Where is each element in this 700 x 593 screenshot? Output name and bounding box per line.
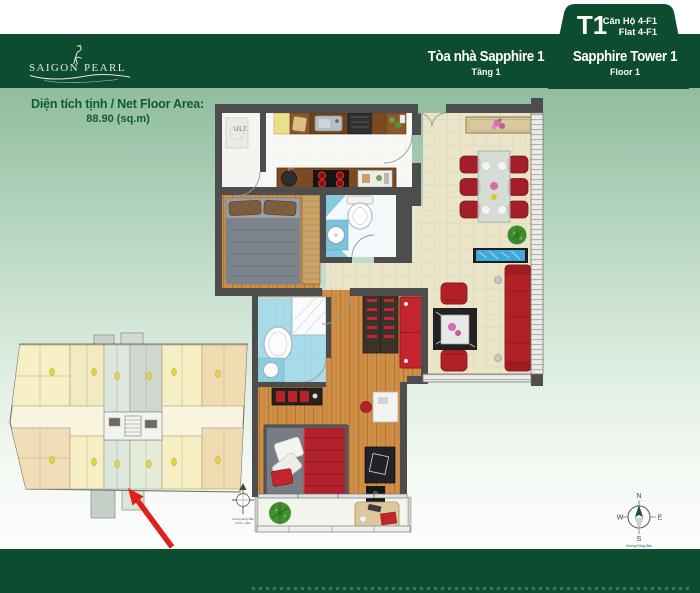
net-floor-area-value: 88.90 (sq.m) <box>58 113 178 125</box>
bedroom-rug <box>365 447 395 483</box>
compass-rose: N E S W Hướng Đông Bắc North - East <box>616 488 664 556</box>
balcony-rail <box>257 526 410 532</box>
window-wall-south <box>423 374 531 382</box>
compass-e: E <box>658 515 663 522</box>
mini-compass-caption-2: North - East <box>236 521 251 525</box>
brand-name-right: PEARL <box>84 62 126 74</box>
saigon-pearl-logo: SAIGON PEARL <box>26 42 136 86</box>
key-plan-compass: Hướng Đông Bắc North - East <box>226 480 260 526</box>
bedroom-2 <box>226 195 320 284</box>
wardrobe-bedroom2 <box>302 195 320 284</box>
north-arrow-icon <box>240 483 247 490</box>
net-floor-area-label: Diện tích tịnh / Net Floor Area: <box>31 97 231 111</box>
tower-floor-en: Floor 1 <box>527 67 700 77</box>
unit-number-vi: Căn Hộ 4-F1 <box>603 16 657 26</box>
armchair <box>441 283 467 304</box>
toilet <box>348 203 372 229</box>
unit-number-en: Flat 4-F1 <box>619 27 657 37</box>
utility-room: ULT. <box>226 118 249 148</box>
utility-label: ULT. <box>234 126 249 133</box>
footer-band <box>0 549 700 593</box>
brand-logo: SAIGON PEARL <box>26 42 136 86</box>
apartment-floor-plan: ULT. <box>214 94 546 549</box>
tower-title-en: Sapphire Tower 1 Floor 1 <box>527 49 700 77</box>
sofa <box>505 265 531 371</box>
compass-w: W <box>617 515 624 522</box>
unit-locator-arrow <box>108 478 178 550</box>
logo-flourish <box>30 74 130 82</box>
basin <box>264 363 279 378</box>
balcony-window <box>258 494 407 498</box>
floor-plan-page: SAIGON PEARL T1 Căn Hộ 4-F1 Flat 4-F1 Tò… <box>0 0 700 593</box>
armchair <box>441 350 467 371</box>
window-wall-east <box>531 113 543 374</box>
desk <box>373 392 398 422</box>
tower-name-en: Sapphire Tower 1 <box>535 49 700 65</box>
stool <box>361 402 372 413</box>
compass-n: N <box>636 493 641 500</box>
brand-name-left: SAIGON <box>29 62 79 74</box>
compass-caption-1: Hướng Đông Bắc <box>626 543 652 548</box>
compass-s: S <box>637 536 642 543</box>
